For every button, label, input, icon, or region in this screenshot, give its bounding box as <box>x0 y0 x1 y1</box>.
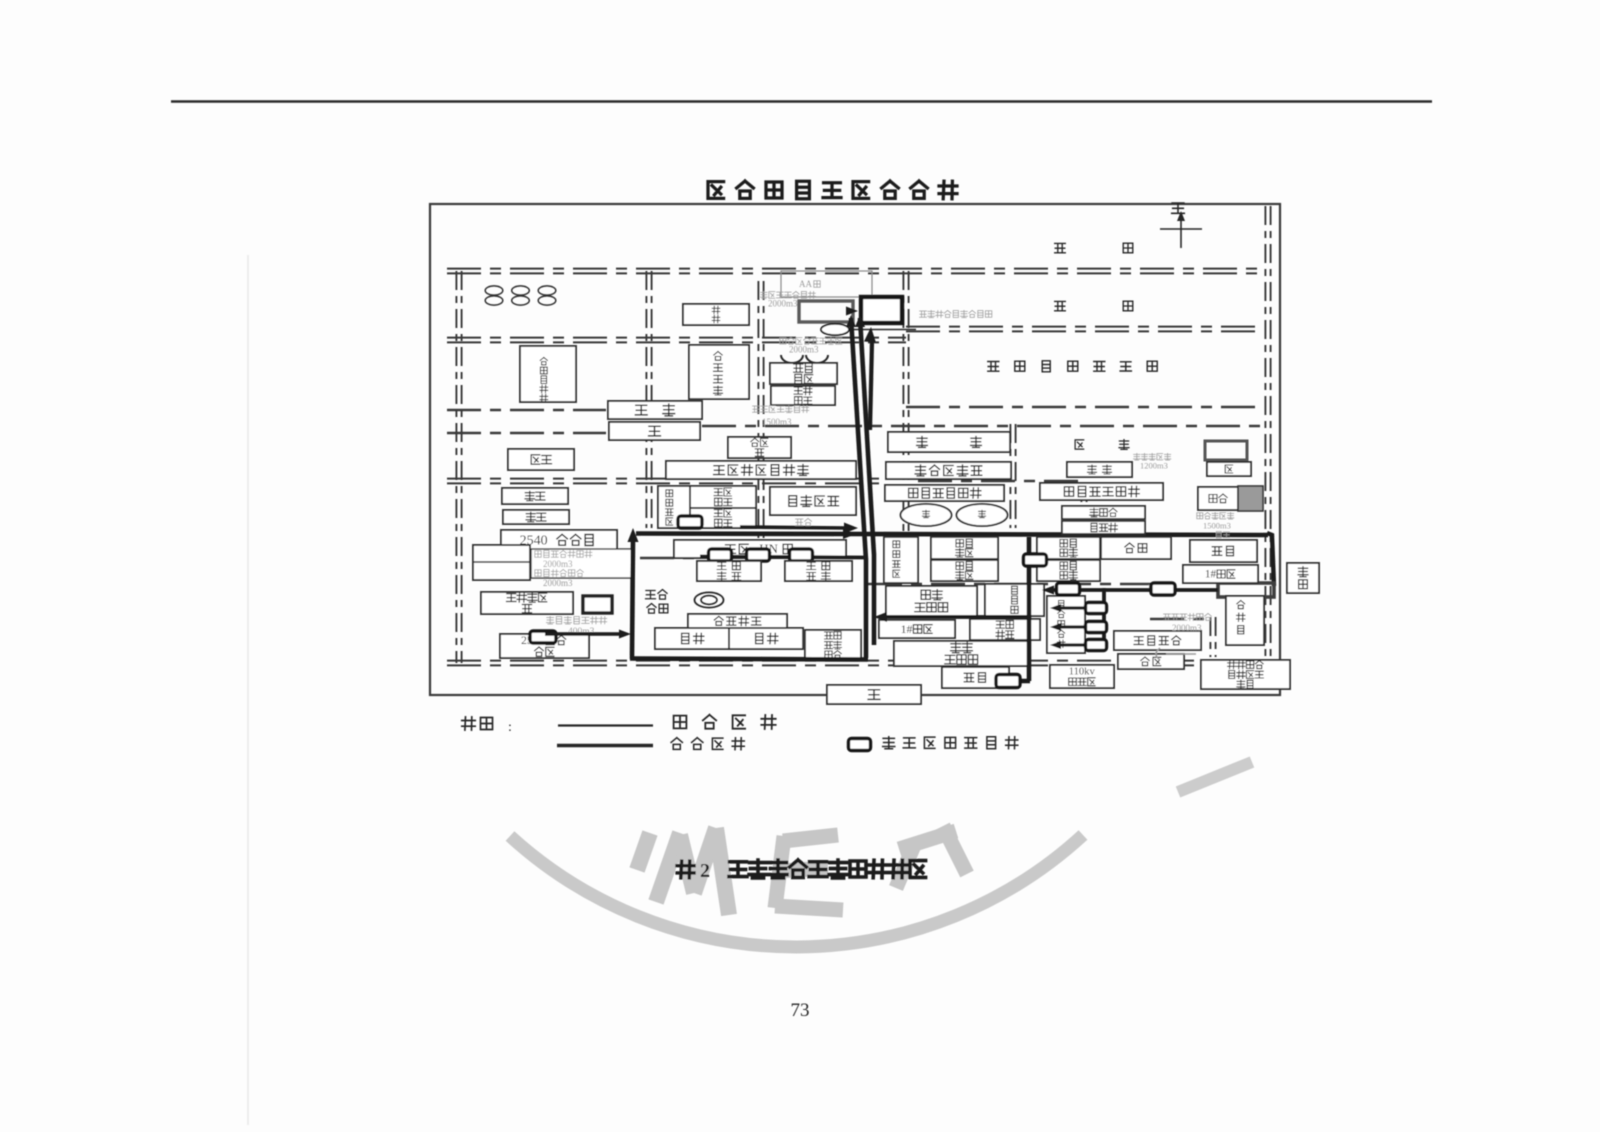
svg-text:2000m3: 2000m3 <box>768 299 798 309</box>
svg-text:1200m3: 1200m3 <box>1140 460 1168 470</box>
svg-text:1#: 1# <box>901 622 913 636</box>
svg-text::: : <box>508 720 512 735</box>
svg-text:AA: AA <box>799 279 812 289</box>
svg-text:2000m3: 2000m3 <box>789 345 819 355</box>
svg-text:1500m3: 1500m3 <box>1203 521 1231 531</box>
svg-text:2000m3: 2000m3 <box>1172 623 1202 633</box>
svg-text:2000m3: 2000m3 <box>543 559 573 569</box>
svg-text:110kv: 110kv <box>1069 667 1096 678</box>
svg-text:1500m3: 1500m3 <box>762 417 792 427</box>
svg-text:73: 73 <box>791 1000 810 1021</box>
svg-text:2: 2 <box>700 860 710 882</box>
svg-text:1#: 1# <box>1205 569 1217 581</box>
svg-text:2000m3: 2000m3 <box>543 578 573 588</box>
